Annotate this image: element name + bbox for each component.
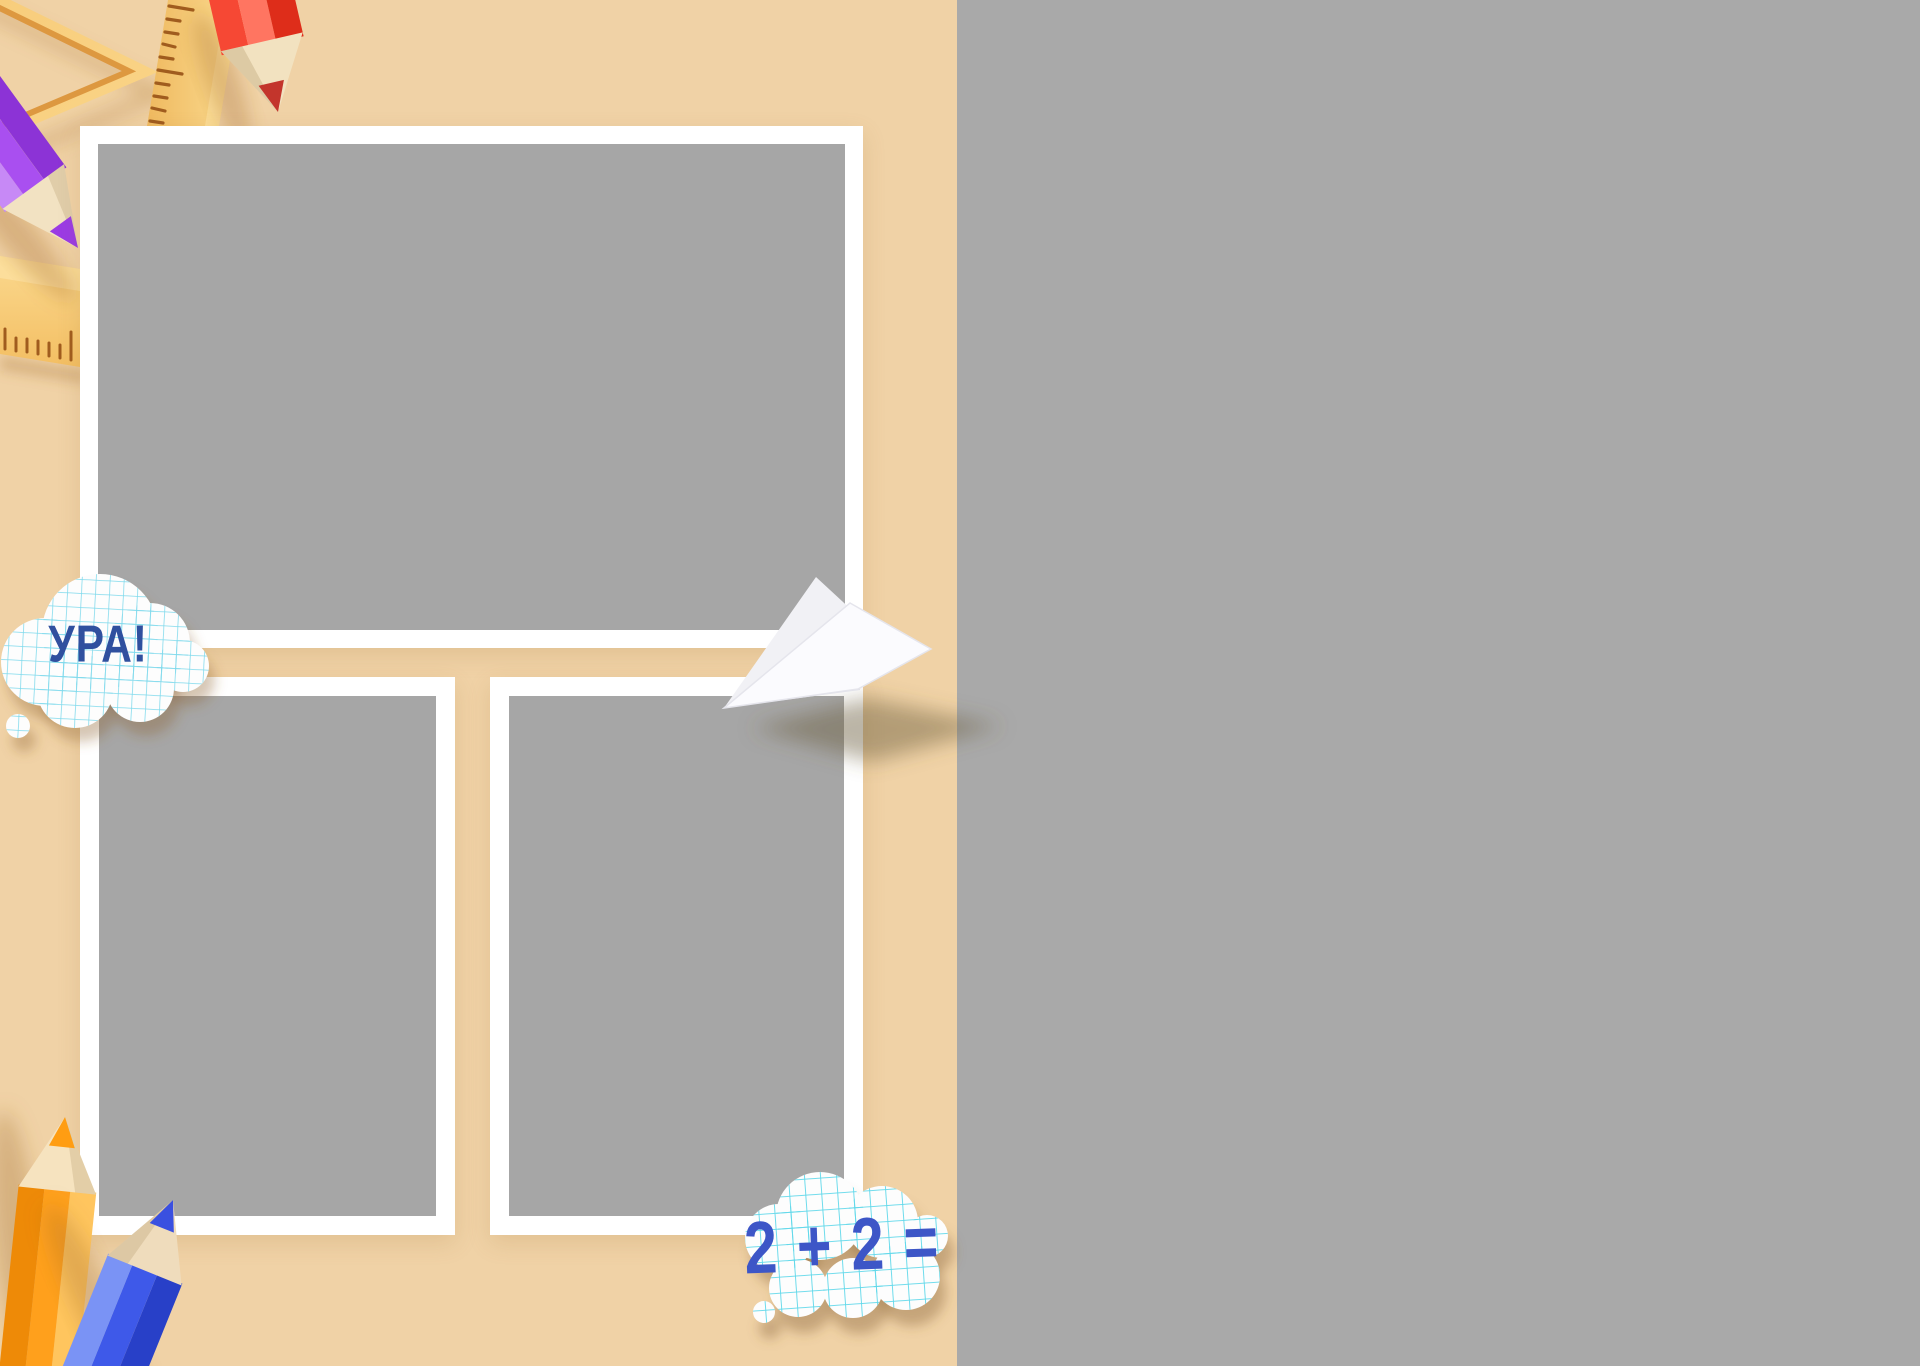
gray-side-panel bbox=[957, 0, 1920, 1366]
photo-slot-bottom-left[interactable] bbox=[99, 696, 436, 1216]
photo-frame-bottom-right bbox=[490, 677, 863, 1235]
photo-slot-top-wide[interactable] bbox=[98, 144, 845, 630]
photo-frame-bottom-left bbox=[80, 677, 455, 1235]
photo-slot-bottom-right[interactable] bbox=[509, 696, 844, 1216]
math-cloud-text: 2 + 2 = bbox=[743, 1199, 941, 1291]
hooray-cloud-text: УРА! bbox=[48, 615, 148, 675]
collage-template-canvas: { "canvas": {"width": 1920, "height": 13… bbox=[0, 0, 1920, 1366]
photo-frame-top-wide bbox=[80, 126, 863, 648]
